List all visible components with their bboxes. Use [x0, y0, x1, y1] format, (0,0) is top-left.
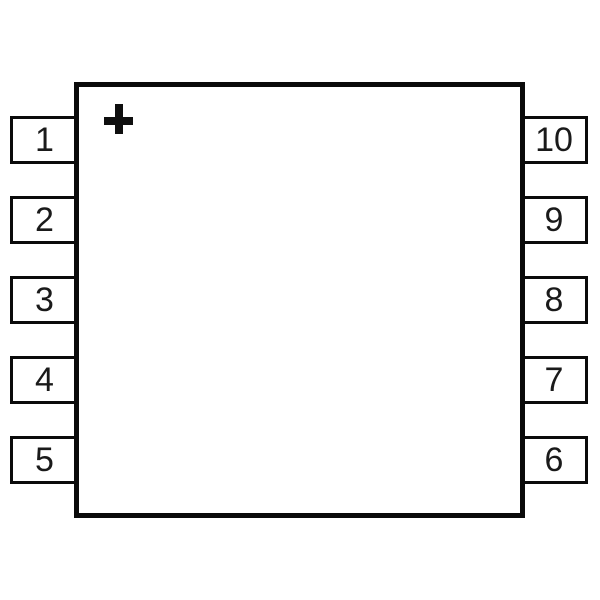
pin-number: 1	[35, 123, 54, 157]
pin-number: 3	[35, 283, 54, 317]
pin-number: 9	[545, 203, 564, 237]
pin-number: 10	[535, 123, 573, 157]
pin1-orientation-plus-icon	[104, 104, 133, 134]
chip-body-outline	[74, 82, 525, 518]
pin-box-left-1: 1	[10, 116, 79, 164]
pin-box-right-9: 9	[520, 196, 588, 244]
pin-box-left-4: 4	[10, 356, 79, 404]
pin-number: 6	[545, 443, 564, 477]
pin-number: 2	[35, 203, 54, 237]
pin-number: 8	[545, 283, 564, 317]
pin-box-right-10: 10	[520, 116, 588, 164]
pin-box-right-6: 6	[520, 436, 588, 484]
pin-box-left-2: 2	[10, 196, 79, 244]
pin-box-right-8: 8	[520, 276, 588, 324]
pin-box-left-5: 5	[10, 436, 79, 484]
pin-box-left-3: 3	[10, 276, 79, 324]
ic-pinout-diagram: 1 2 3 4 5 10 9 8 7 6	[0, 0, 600, 600]
plus-vertical-bar	[115, 104, 123, 134]
pin-number: 7	[545, 363, 564, 397]
pin-number: 5	[35, 443, 54, 477]
pin-box-right-7: 7	[520, 356, 588, 404]
pin-number: 4	[35, 363, 54, 397]
